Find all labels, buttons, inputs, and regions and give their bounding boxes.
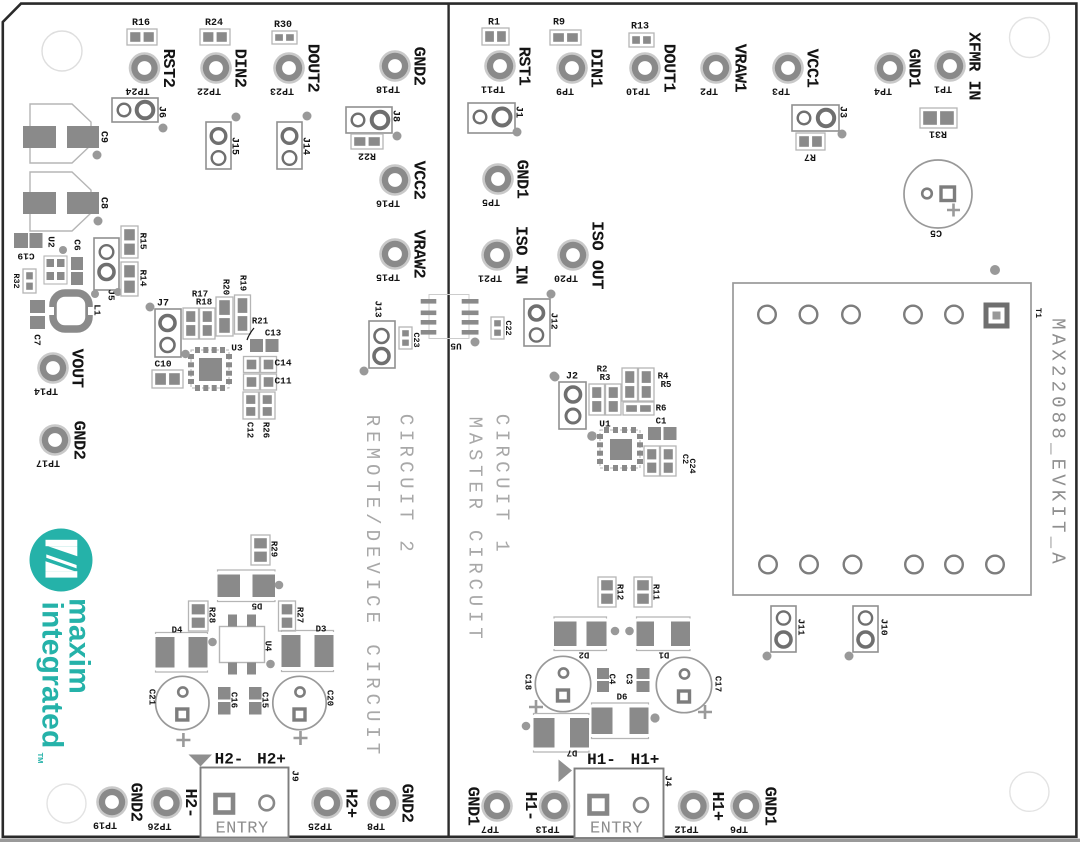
svg-text:TP20: TP20 <box>554 271 578 282</box>
svg-text:C16: C16 <box>229 692 239 708</box>
svg-text:TP2: TP2 <box>700 84 718 95</box>
svg-text:C24: C24 <box>687 458 697 473</box>
svg-text:TP24: TP24 <box>125 84 149 95</box>
svg-text:R15: R15 <box>137 232 148 249</box>
svg-text:ISO OUT: ISO OUT <box>587 221 606 289</box>
svg-text:TP14: TP14 <box>34 384 58 395</box>
svg-text:MAX22088_EVKIT_A: MAX22088_EVKIT_A <box>1046 318 1068 568</box>
svg-text:TP18: TP18 <box>376 82 400 93</box>
svg-text:TP9: TP9 <box>556 84 574 95</box>
svg-text:TP15: TP15 <box>376 270 400 281</box>
svg-text:D2: D2 <box>579 650 590 660</box>
svg-text:D5: D5 <box>252 601 263 611</box>
svg-text:H1+: H1+ <box>707 791 726 820</box>
svg-text:C5: C5 <box>930 226 942 237</box>
svg-text:TP23: TP23 <box>270 84 294 95</box>
svg-text:H1+: H1+ <box>631 751 660 769</box>
svg-text:RST2: RST2 <box>158 49 177 88</box>
svg-text:R7: R7 <box>804 150 816 161</box>
svg-text:R3: R3 <box>600 373 611 383</box>
svg-text:U5: U5 <box>450 340 462 351</box>
svg-text:TP19: TP19 <box>93 818 117 829</box>
svg-text:U4: U4 <box>263 641 273 652</box>
svg-text:R19: R19 <box>238 275 248 291</box>
svg-text:DOUT1: DOUT1 <box>659 44 678 93</box>
svg-text:R12: R12 <box>615 584 625 600</box>
svg-text:R18: R18 <box>196 297 212 307</box>
svg-text:C19: C19 <box>17 250 34 261</box>
svg-text:H2-: H2- <box>215 751 244 769</box>
svg-text:C11: C11 <box>274 376 291 387</box>
svg-text:GND2: GND2 <box>397 784 416 823</box>
svg-text:DIN1: DIN1 <box>586 49 605 88</box>
svg-text:R26: R26 <box>261 422 271 438</box>
svg-text:R6: R6 <box>656 403 667 413</box>
svg-text:R11: R11 <box>651 584 661 601</box>
svg-text:C15: C15 <box>260 692 270 708</box>
svg-text:U3: U3 <box>231 343 243 354</box>
svg-text:TP11: TP11 <box>481 82 505 93</box>
svg-text:TP6: TP6 <box>730 822 748 833</box>
svg-text:RST1: RST1 <box>514 47 533 86</box>
svg-text:H2+: H2+ <box>257 751 286 769</box>
svg-text:TP7: TP7 <box>481 822 499 833</box>
svg-text:C1: C1 <box>656 416 667 426</box>
svg-text:C20: C20 <box>325 690 335 706</box>
svg-text:J10: J10 <box>878 618 889 635</box>
svg-text:R16: R16 <box>132 18 150 29</box>
svg-text:J1: J1 <box>512 106 523 118</box>
svg-text:DOUT2: DOUT2 <box>303 44 322 93</box>
svg-text:R21: R21 <box>252 316 269 326</box>
svg-text:TP22: TP22 <box>197 84 221 95</box>
svg-text:C13: C13 <box>265 328 281 338</box>
svg-text:J3: J3 <box>836 106 847 118</box>
svg-text:GND2: GND2 <box>126 783 145 822</box>
svg-text:VRAW1: VRAW1 <box>730 44 749 93</box>
svg-text:C3: C3 <box>624 674 634 685</box>
svg-text:TP12: TP12 <box>674 822 698 833</box>
svg-text:H1-: H1- <box>520 791 539 820</box>
svg-text:DIN2: DIN2 <box>230 49 249 88</box>
svg-text:GND2: GND2 <box>69 421 88 460</box>
svg-text:J9: J9 <box>289 770 300 782</box>
svg-text:TP16: TP16 <box>376 196 400 207</box>
svg-text:C9: C9 <box>97 131 108 143</box>
svg-text:integrated: integrated <box>36 601 69 748</box>
svg-text:TP17: TP17 <box>36 456 60 467</box>
svg-text:R28: R28 <box>207 607 217 623</box>
svg-text:D7: D7 <box>567 748 578 758</box>
svg-text:J15: J15 <box>228 137 239 155</box>
svg-text:D1: D1 <box>658 650 669 660</box>
svg-text:VCC1: VCC1 <box>802 49 821 88</box>
svg-text:U2: U2 <box>45 236 56 248</box>
svg-text:C22: C22 <box>503 320 513 335</box>
svg-text:TP4: TP4 <box>874 84 892 95</box>
svg-text:R14: R14 <box>137 269 148 286</box>
svg-text:GND2: GND2 <box>409 47 428 86</box>
svg-text:J11: J11 <box>795 618 806 635</box>
svg-text:D6: D6 <box>617 692 628 702</box>
svg-text:C8: C8 <box>97 197 108 209</box>
svg-text:VRAW2: VRAW2 <box>409 230 428 279</box>
svg-text:R1: R1 <box>488 18 500 29</box>
svg-text:ENTRY: ENTRY <box>590 819 643 838</box>
svg-text:R13: R13 <box>631 22 649 33</box>
svg-text:C12: C12 <box>245 422 255 438</box>
svg-text:C14: C14 <box>274 358 291 369</box>
svg-text:J2: J2 <box>566 372 578 383</box>
svg-text:XFMR IN: XFMR IN <box>964 32 983 100</box>
svg-text:R30: R30 <box>274 20 292 31</box>
svg-text:R5: R5 <box>661 380 672 390</box>
svg-text:VCC2: VCC2 <box>409 161 428 200</box>
svg-text:TP26: TP26 <box>147 819 171 830</box>
svg-text:C6: C6 <box>71 239 82 251</box>
svg-text:TP10: TP10 <box>626 84 650 95</box>
svg-text:J6: J6 <box>155 106 166 118</box>
svg-text:TP8: TP8 <box>367 819 385 830</box>
svg-text:R9: R9 <box>553 18 565 29</box>
svg-text:H1-: H1- <box>587 751 616 769</box>
svg-text:R27: R27 <box>295 607 305 623</box>
svg-text:R24: R24 <box>205 18 223 29</box>
svg-text:R31: R31 <box>929 127 947 138</box>
svg-text:J12: J12 <box>548 312 559 329</box>
svg-text:VOUT: VOUT <box>67 349 86 388</box>
svg-text:L1: L1 <box>91 304 102 316</box>
svg-text:T1: T1 <box>1033 308 1043 318</box>
svg-text:J13: J13 <box>372 300 383 317</box>
svg-text:D4: D4 <box>172 625 183 635</box>
svg-text:C21: C21 <box>147 689 157 706</box>
svg-text:ENTRY: ENTRY <box>215 819 268 838</box>
svg-text:R22: R22 <box>358 149 376 160</box>
svg-text:R20: R20 <box>221 279 231 295</box>
svg-text:TP13: TP13 <box>535 822 559 833</box>
svg-text:TP1: TP1 <box>934 82 952 93</box>
svg-text:C10: C10 <box>154 359 171 370</box>
svg-text:TP25: TP25 <box>308 819 332 830</box>
svg-text:C23: C23 <box>411 332 421 347</box>
svg-text:C18: C18 <box>523 674 533 690</box>
svg-text:GND1: GND1 <box>463 787 482 826</box>
svg-text:C4: C4 <box>607 674 617 685</box>
svg-text:H2+: H2+ <box>341 788 360 817</box>
svg-text:GND1: GND1 <box>760 787 779 826</box>
svg-text:D3: D3 <box>316 624 327 634</box>
svg-text:J7: J7 <box>157 299 169 310</box>
svg-text:J8: J8 <box>389 110 400 122</box>
svg-text:H2-: H2- <box>180 788 199 817</box>
svg-text:CIRCUIT 2: CIRCUIT 2 <box>394 414 416 556</box>
svg-text:TP3: TP3 <box>772 84 790 95</box>
svg-text:J4: J4 <box>662 775 673 787</box>
svg-text:MASTER CIRCUIT: MASTER CIRCUIT <box>463 417 485 644</box>
svg-text:ISO IN: ISO IN <box>511 226 530 285</box>
svg-text:TP5: TP5 <box>482 195 500 206</box>
svg-text:C7: C7 <box>31 334 42 346</box>
svg-text:J14: J14 <box>299 137 310 155</box>
svg-text:C17: C17 <box>713 676 723 692</box>
svg-text:TP21: TP21 <box>478 271 502 282</box>
svg-text:CIRCUIT 1: CIRCUIT 1 <box>490 414 512 556</box>
svg-text:TM: TM <box>36 753 45 764</box>
svg-text:REMOTE/DEVICE CIRCUIT: REMOTE/DEVICE CIRCUIT <box>361 415 383 759</box>
svg-text:R29: R29 <box>269 541 279 557</box>
svg-text:R32: R32 <box>11 273 21 288</box>
svg-text:GND1: GND1 <box>904 49 923 88</box>
svg-text:GND1: GND1 <box>512 160 531 199</box>
